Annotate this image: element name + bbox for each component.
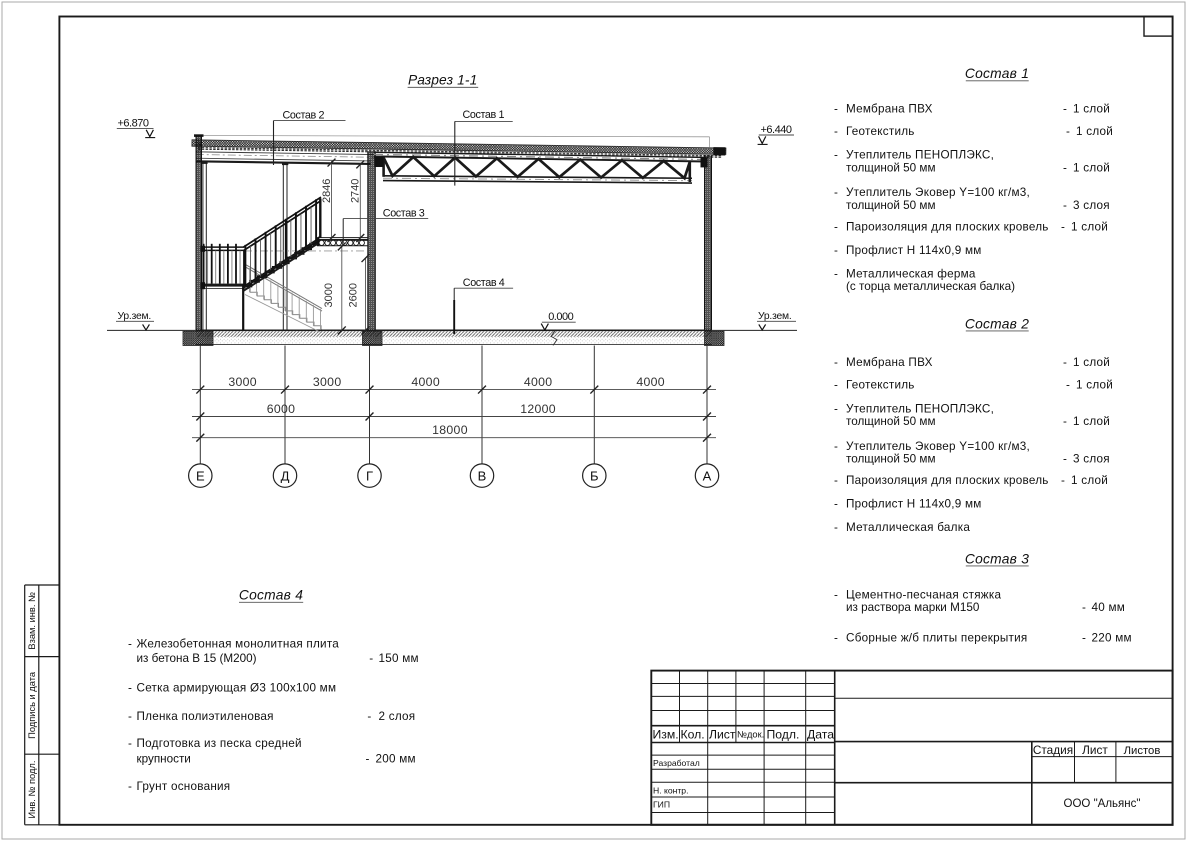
svg-text:-: - bbox=[128, 638, 132, 651]
svg-text:4000: 4000 bbox=[524, 375, 553, 389]
svg-text:Состав 3: Состав 3 bbox=[383, 207, 425, 219]
svg-text:-: - bbox=[1063, 356, 1067, 369]
svg-text:-: - bbox=[834, 221, 838, 234]
svg-text:Утеплитель ПЕНОПЛЭКС,: Утеплитель ПЕНОПЛЭКС, bbox=[846, 403, 994, 416]
svg-text:-: - bbox=[834, 403, 838, 416]
svg-text:-: - bbox=[834, 440, 838, 453]
svg-text:-: - bbox=[834, 102, 838, 115]
svg-text:-: - bbox=[834, 378, 838, 391]
svg-text:2846: 2846 bbox=[321, 179, 333, 203]
svg-text:Железобетонная монолитная пли: Железобетонная монолитная плита bbox=[137, 638, 340, 651]
svg-text:Сборные ж/б плиты перекрытия: Сборные ж/б плиты перекрытия bbox=[846, 631, 1027, 644]
svg-text:Состав 3: Состав 3 bbox=[965, 551, 1029, 566]
svg-text:1 слой: 1 слой bbox=[1071, 474, 1108, 487]
svg-text:4000: 4000 bbox=[411, 375, 440, 389]
svg-text:-: - bbox=[834, 631, 838, 644]
svg-text:-: - bbox=[834, 498, 838, 511]
svg-text:Листов: Листов bbox=[1124, 745, 1161, 757]
svg-text:-: - bbox=[1063, 102, 1067, 115]
svg-text:-: - bbox=[834, 186, 838, 199]
svg-text:Разрез 1-1: Разрез 1-1 bbox=[408, 72, 477, 87]
svg-text:Мембрана ПВХ: Мембрана ПВХ bbox=[846, 102, 933, 115]
svg-text:200 мм: 200 мм bbox=[376, 753, 416, 766]
svg-text:40 мм: 40 мм bbox=[1092, 601, 1126, 614]
svg-text:Пленка полиэтиленовая: Пленка полиэтиленовая bbox=[137, 710, 274, 723]
svg-text:-: - bbox=[1063, 199, 1067, 212]
svg-text:3000: 3000 bbox=[323, 283, 335, 307]
svg-text:Утеплитель Эковер Y=100 кг/м3,: Утеплитель Эковер Y=100 кг/м3, bbox=[846, 440, 1030, 453]
svg-text:-: - bbox=[834, 268, 838, 281]
svg-text:Геотекстиль: Геотекстиль bbox=[846, 378, 915, 391]
svg-text:1 слой: 1 слой bbox=[1073, 356, 1110, 369]
svg-text:-: - bbox=[367, 710, 371, 723]
svg-text:Состав 1: Состав 1 bbox=[463, 109, 505, 121]
svg-text:Г: Г bbox=[366, 468, 373, 483]
svg-text:Лист: Лист bbox=[709, 728, 736, 742]
svg-text:из раствора марки М150: из раствора марки М150 bbox=[846, 601, 980, 614]
svg-text:Грунт основания: Грунт основания bbox=[137, 780, 231, 793]
svg-text:2 слоя: 2 слоя bbox=[379, 710, 416, 723]
svg-text:Подпись и дата: Подпись и дата bbox=[27, 671, 37, 739]
svg-text:1 слой: 1 слой bbox=[1073, 415, 1110, 428]
svg-text:Подготовка из песка средней: Подготовка из песка средней bbox=[137, 737, 302, 750]
svg-text:Кол.: Кол. bbox=[681, 728, 705, 742]
svg-text:-: - bbox=[834, 149, 838, 162]
svg-text:Состав 2: Состав 2 bbox=[283, 109, 325, 121]
svg-text:из бетона В 15 (М200): из бетона В 15 (М200) bbox=[137, 652, 257, 665]
svg-text:Д: Д bbox=[281, 468, 290, 483]
svg-text:1 слой: 1 слой bbox=[1076, 378, 1113, 391]
svg-text:12000: 12000 bbox=[520, 402, 556, 416]
svg-text:Состав 1: Состав 1 bbox=[965, 66, 1029, 81]
svg-text:6000: 6000 bbox=[267, 402, 296, 416]
svg-text:-: - bbox=[1066, 125, 1070, 138]
svg-text:3 слоя: 3 слоя bbox=[1073, 452, 1110, 465]
svg-text:4000: 4000 bbox=[636, 375, 665, 389]
svg-text:Пароизоляция для плоских крове: Пароизоляция для плоских кровель bbox=[846, 474, 1049, 487]
svg-text:Сетка армирующая Ø3 100х100 мм: Сетка армирующая Ø3 100х100 мм bbox=[137, 682, 337, 695]
svg-text:+6.870: +6.870 bbox=[118, 117, 149, 129]
svg-text:толщиной 50 мм: толщиной 50 мм bbox=[846, 199, 935, 212]
svg-text:Пароизоляция для плоских крове: Пароизоляция для плоских кровель bbox=[846, 221, 1049, 234]
svg-text:(с торца металлическая балка): (с торца металлическая балка) bbox=[846, 280, 1015, 293]
svg-text:-: - bbox=[1063, 415, 1067, 428]
svg-text:ГИП: ГИП bbox=[653, 799, 670, 809]
svg-text:150 мм: 150 мм bbox=[379, 652, 419, 665]
svg-text:толщиной 50 мм: толщиной 50 мм bbox=[846, 161, 935, 174]
svg-text:Дата: Дата bbox=[807, 728, 834, 742]
svg-text:-: - bbox=[834, 356, 838, 369]
svg-text:-: - bbox=[128, 737, 132, 750]
svg-text:-: - bbox=[1082, 601, 1086, 614]
svg-text:Взам. инв. №: Взам. инв. № bbox=[27, 592, 37, 650]
svg-text:1 слой: 1 слой bbox=[1076, 125, 1113, 138]
svg-text:Инв. № подл.: Инв. № подл. bbox=[27, 761, 37, 819]
svg-text:3000: 3000 bbox=[228, 375, 257, 389]
svg-text:3000: 3000 bbox=[313, 375, 342, 389]
svg-text:Ур.зем.: Ур.зем. bbox=[118, 311, 152, 322]
svg-text:-: - bbox=[1063, 452, 1067, 465]
svg-text:-: - bbox=[1063, 161, 1067, 174]
svg-text:-: - bbox=[128, 710, 132, 723]
svg-text:-: - bbox=[366, 753, 370, 766]
svg-text:Профлист Н 114х0,9 мм: Профлист Н 114х0,9 мм bbox=[846, 244, 982, 257]
svg-text:1 слой: 1 слой bbox=[1071, 221, 1108, 234]
svg-text:-: - bbox=[834, 474, 838, 487]
svg-text:-: - bbox=[1061, 221, 1065, 234]
svg-text:1 слой: 1 слой bbox=[1073, 161, 1110, 174]
svg-text:Подл.: Подл. bbox=[767, 728, 800, 742]
svg-text:А: А bbox=[703, 468, 712, 483]
svg-text:-: - bbox=[1066, 378, 1070, 391]
svg-text:18000: 18000 bbox=[432, 423, 468, 437]
svg-text:0.000: 0.000 bbox=[548, 311, 573, 323]
svg-text:-: - bbox=[834, 244, 838, 257]
svg-text:Профлист Н 114х0,9 мм: Профлист Н 114х0,9 мм bbox=[846, 498, 982, 511]
svg-text:2740: 2740 bbox=[350, 179, 362, 203]
svg-text:2600: 2600 bbox=[348, 283, 360, 307]
svg-text:-: - bbox=[834, 125, 838, 138]
svg-text:-: - bbox=[128, 682, 132, 695]
svg-text:ООО "Альянс": ООО "Альянс" bbox=[1064, 798, 1141, 810]
svg-text:-: - bbox=[1061, 474, 1065, 487]
svg-text:Состав 4: Состав 4 bbox=[239, 587, 303, 602]
svg-text:-: - bbox=[369, 652, 373, 665]
svg-text:3 слоя: 3 слоя bbox=[1073, 199, 1110, 212]
svg-text:Разработал: Разработал bbox=[653, 758, 700, 768]
svg-text:Стадия: Стадия bbox=[1033, 743, 1073, 757]
svg-text:Б: Б bbox=[590, 468, 599, 483]
svg-text:Утеплитель ПЕНОПЛЭКС,: Утеплитель ПЕНОПЛЭКС, bbox=[846, 149, 994, 162]
svg-text:Состав 4: Состав 4 bbox=[463, 277, 505, 289]
svg-text:Геотекстиль: Геотекстиль bbox=[846, 125, 915, 138]
svg-text:220 мм: 220 мм bbox=[1092, 631, 1132, 644]
svg-text:-: - bbox=[834, 588, 838, 601]
svg-text:Лист: Лист bbox=[1082, 743, 1108, 757]
svg-text:-: - bbox=[128, 780, 132, 793]
svg-text:№док.: №док. bbox=[737, 730, 764, 740]
svg-text:Ур.зем.: Ур.зем. bbox=[758, 311, 792, 322]
svg-text:Цементно-песчаная стяжка: Цементно-песчаная стяжка bbox=[846, 588, 1001, 601]
svg-text:Металлическая ферма: Металлическая ферма bbox=[846, 268, 976, 281]
svg-text:толщиной 50 мм: толщиной 50 мм bbox=[846, 452, 935, 465]
svg-text:Изм.: Изм. bbox=[653, 728, 679, 742]
svg-text:+6.440: +6.440 bbox=[761, 124, 792, 136]
svg-text:Е: Е bbox=[196, 468, 205, 483]
svg-text:В: В bbox=[478, 468, 487, 483]
svg-text:Металлическая балка: Металлическая балка bbox=[846, 521, 970, 534]
svg-text:крупности: крупности bbox=[137, 753, 191, 766]
svg-text:Утеплитель Эковер Y=100 кг/м3,: Утеплитель Эковер Y=100 кг/м3, bbox=[846, 186, 1030, 199]
svg-text:-: - bbox=[834, 521, 838, 534]
svg-text:Состав 2: Состав 2 bbox=[965, 316, 1029, 331]
svg-text:толщиной 50 мм: толщиной 50 мм bbox=[846, 415, 935, 428]
svg-text:Мембрана ПВХ: Мембрана ПВХ bbox=[846, 356, 933, 369]
svg-text:Н. контр.: Н. контр. bbox=[653, 785, 688, 795]
svg-text:-: - bbox=[1082, 631, 1086, 644]
svg-text:1 слой: 1 слой bbox=[1073, 102, 1110, 115]
